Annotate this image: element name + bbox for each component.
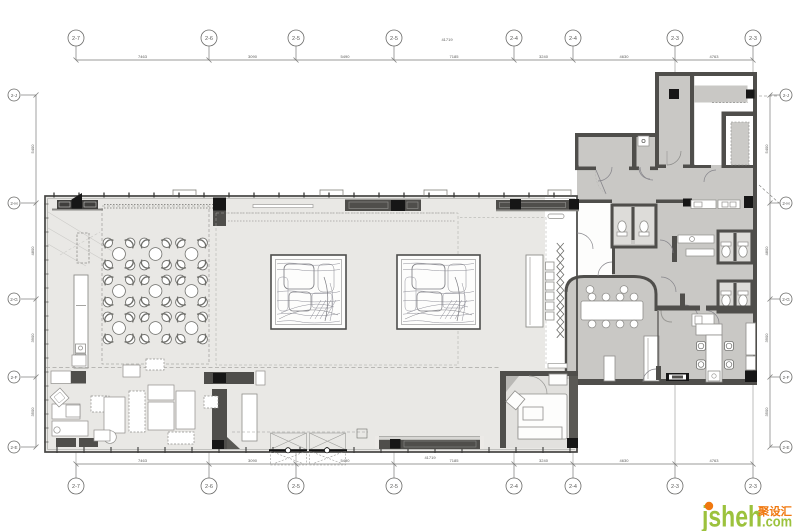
svg-text:2-5: 2-5 — [292, 484, 300, 490]
svg-text:2-H: 2-H — [782, 201, 789, 206]
svg-text:2-3: 2-3 — [749, 484, 757, 490]
svg-text:4630: 4630 — [620, 54, 630, 59]
svg-text:2-4: 2-4 — [569, 36, 577, 42]
svg-text:3500: 3500 — [30, 407, 35, 417]
svg-text:5400: 5400 — [764, 144, 769, 154]
svg-text:2-6: 2-6 — [205, 36, 213, 42]
svg-text:3900: 3900 — [30, 333, 35, 343]
svg-text:2-4: 2-4 — [510, 36, 518, 42]
svg-text:聚设汇: 聚设汇 — [757, 504, 792, 518]
svg-text:7463: 7463 — [138, 54, 148, 59]
svg-text:2-J: 2-J — [783, 93, 789, 98]
svg-text:5400: 5400 — [30, 144, 35, 154]
svg-text:3500: 3500 — [764, 407, 769, 417]
svg-text:2-4: 2-4 — [569, 484, 577, 490]
svg-text:2-5: 2-5 — [292, 36, 300, 42]
svg-text:5490: 5490 — [341, 54, 351, 59]
svg-text:2-6: 2-6 — [205, 484, 213, 490]
svg-text:2-7: 2-7 — [72, 36, 80, 42]
svg-text:4800: 4800 — [764, 246, 769, 256]
svg-text:2-G: 2-G — [782, 297, 790, 302]
svg-text:4800: 4800 — [30, 246, 35, 256]
svg-text:41719: 41719 — [424, 455, 436, 460]
svg-text:2-F: 2-F — [783, 375, 790, 380]
svg-text:3090: 3090 — [248, 458, 258, 463]
svg-text:2-H: 2-H — [10, 201, 17, 206]
svg-text:2-E: 2-E — [782, 445, 789, 450]
svg-text:4763: 4763 — [710, 54, 720, 59]
svg-text:2-3: 2-3 — [671, 36, 679, 42]
svg-text:2-4: 2-4 — [510, 484, 518, 490]
svg-text:2-J: 2-J — [11, 93, 17, 98]
svg-text:2-5: 2-5 — [390, 484, 398, 490]
svg-text:3900: 3900 — [764, 333, 769, 343]
svg-text:3240: 3240 — [539, 54, 549, 59]
svg-text:2-5: 2-5 — [390, 36, 398, 42]
svg-text:3240: 3240 — [539, 458, 549, 463]
svg-text:4630: 4630 — [620, 458, 630, 463]
svg-text:41719: 41719 — [441, 37, 453, 42]
svg-text:2-G: 2-G — [10, 297, 18, 302]
svg-text:7463: 7463 — [138, 458, 148, 463]
svg-text:2-E: 2-E — [10, 445, 17, 450]
svg-text:4763: 4763 — [710, 458, 720, 463]
svg-text:7185: 7185 — [450, 54, 460, 59]
svg-text:2-3: 2-3 — [749, 36, 757, 42]
svg-text:2-7: 2-7 — [72, 484, 80, 490]
svg-text:3090: 3090 — [248, 54, 258, 59]
svg-text:7185: 7185 — [450, 458, 460, 463]
svg-text:2-3: 2-3 — [671, 484, 679, 490]
svg-text:2-F: 2-F — [11, 375, 18, 380]
